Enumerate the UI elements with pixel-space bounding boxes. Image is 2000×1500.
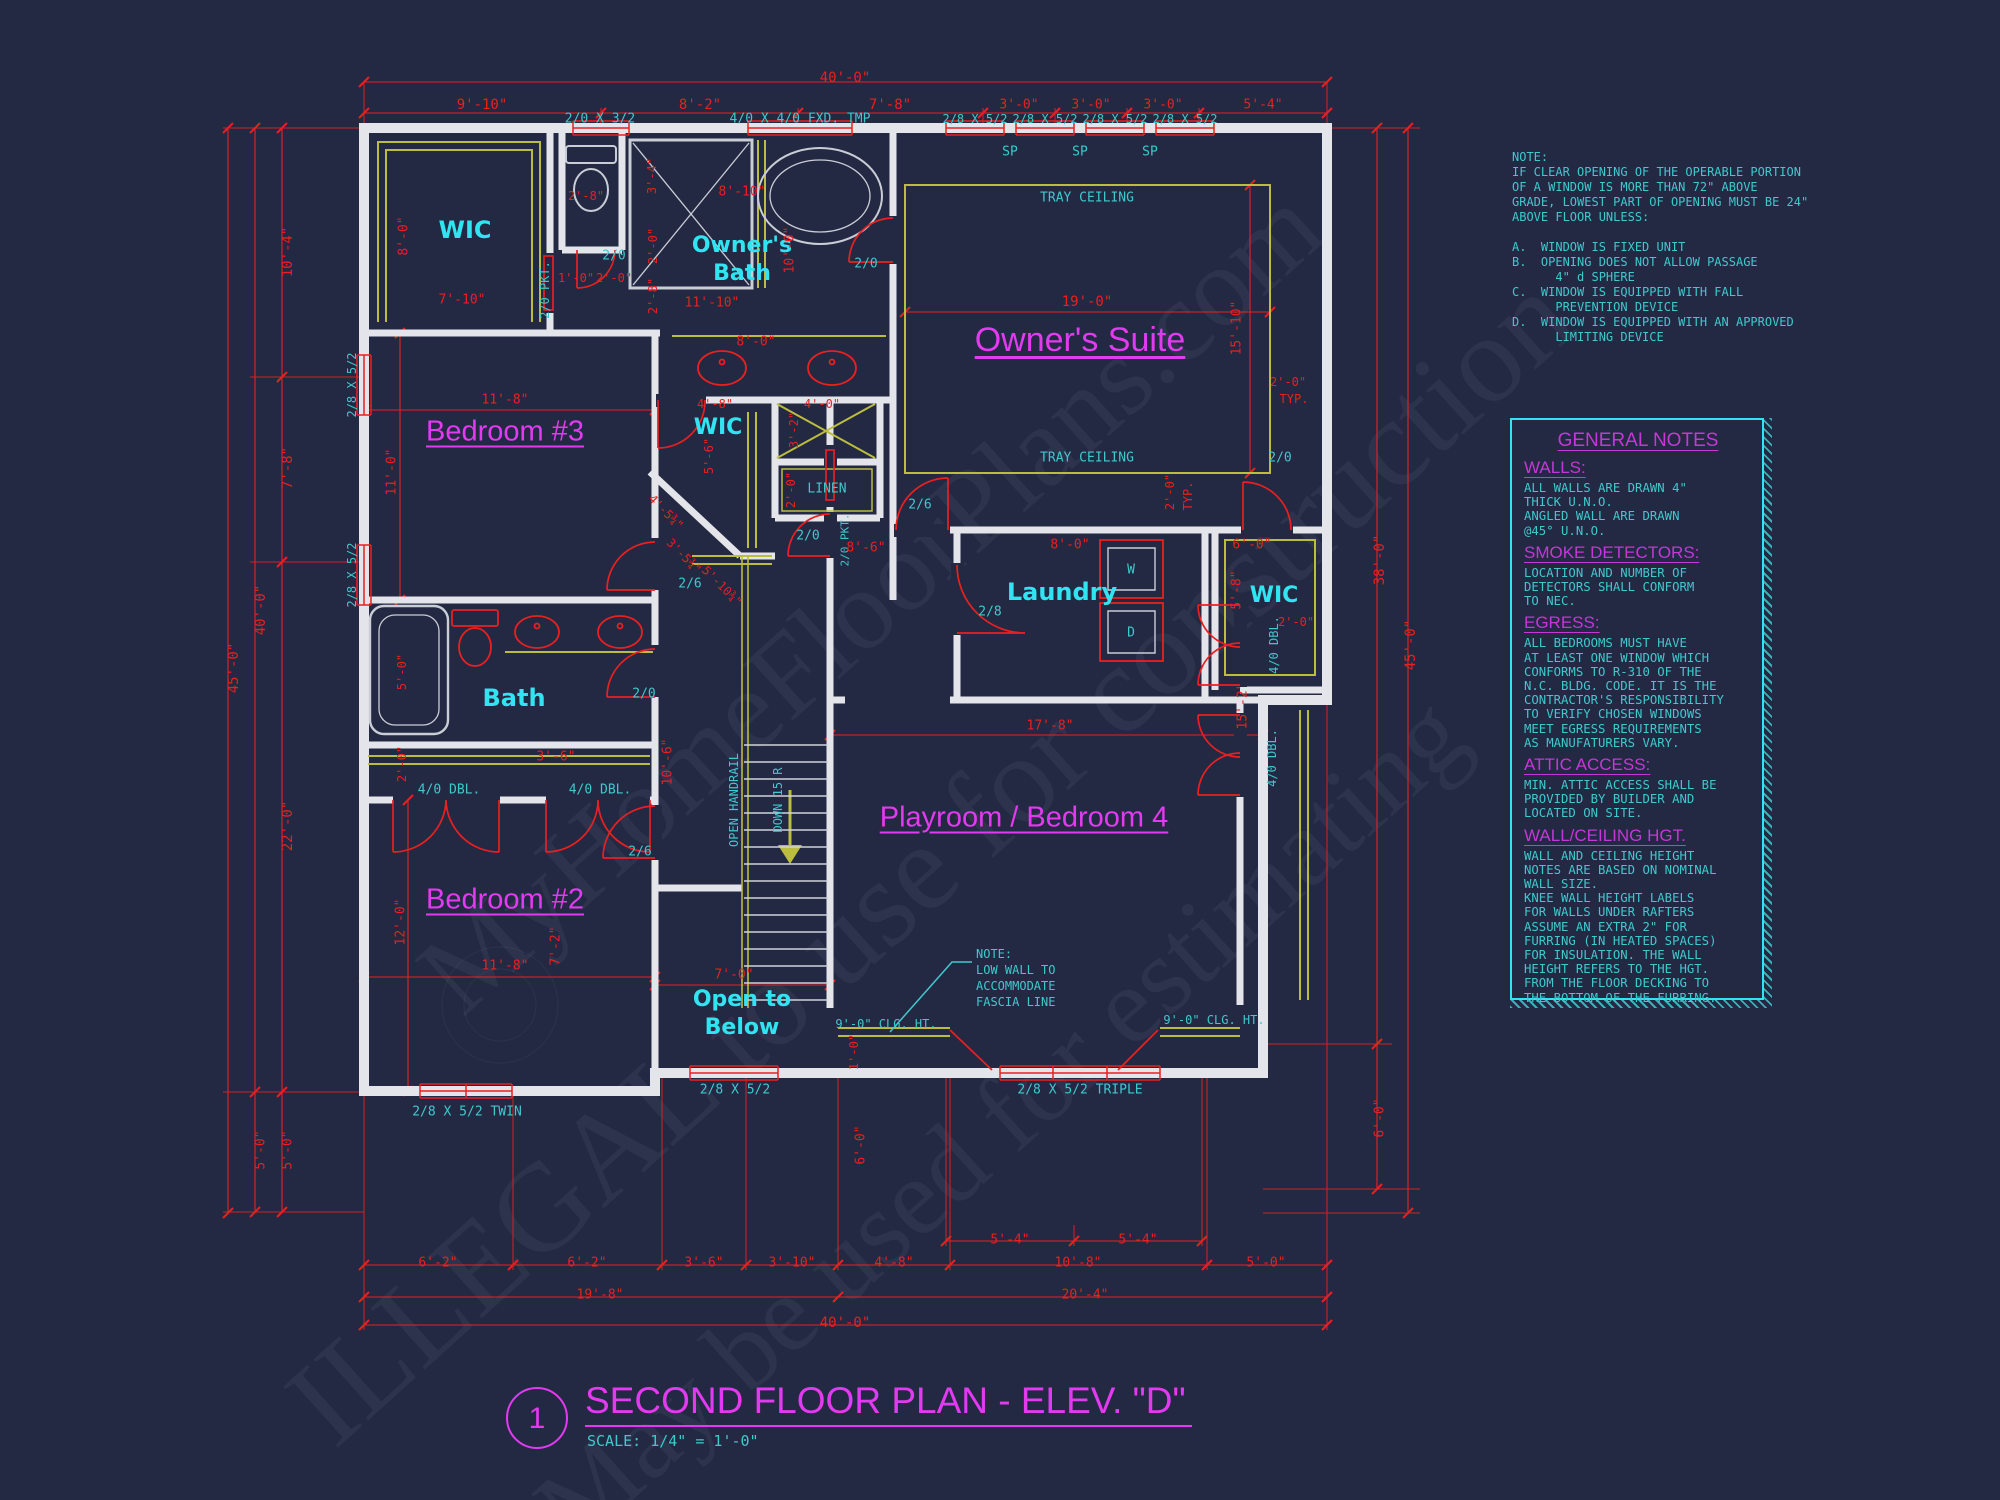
annotation-label: LOW WALL TO (976, 964, 1055, 976)
dimension-label: 2'-0" (1270, 376, 1306, 388)
door-label: 2/0 (854, 258, 877, 271)
annotation-label: SP (1142, 146, 1158, 159)
dimension-label: 5'-0" (1246, 1257, 1285, 1270)
dimension-label: 11'-0" (386, 449, 399, 496)
general-notes-line: ALL WALLS ARE DRAWN 4" (1524, 481, 1762, 495)
window-note-line: PREVENTION DEVICE (1512, 300, 1812, 315)
door-label: 2/6 (628, 846, 651, 859)
annotation-label: NOTE: (976, 948, 1012, 960)
general-notes-heading: EGRESS: (1524, 613, 1762, 633)
general-notes-line: TO VERIFY CHOSEN WINDOWS (1524, 707, 1762, 721)
dimension-label: 6'-2" (418, 1257, 457, 1270)
general-notes-line: AS MANUFATURERS VARY. (1524, 736, 1762, 750)
room-label-bedroom-2: Bedroom #2 (426, 886, 584, 915)
dimension-label: 5'-6" (703, 438, 715, 474)
dimension-label: 22'-0" (281, 801, 295, 852)
dimension-label: 2'-8" (568, 190, 604, 202)
window-label: 4/0 X 4/0 FXD. TMP (730, 113, 871, 126)
general-notes-line: WALL SIZE. (1524, 877, 1762, 891)
general-notes-heading: WALL/CEILING HGT. (1524, 826, 1762, 846)
room-label-linen: LINEN (807, 483, 846, 496)
dimension-label: 5'-4" (1243, 99, 1282, 112)
window-code-note: NOTE:IF CLEAR OPENING OF THE OPERABLE PO… (1512, 150, 1812, 345)
dimension-label: 5'-0" (282, 1130, 295, 1169)
door-label: 2/6 (908, 499, 931, 512)
dimension-label: 4'-8" (874, 1257, 913, 1270)
sink (808, 351, 856, 385)
dimension-label: 3'-2" (788, 412, 800, 448)
toilet-bowl (459, 628, 491, 666)
dimension-label: 6'-0" (855, 1125, 868, 1164)
dimension-label: 10'-6" (662, 739, 675, 786)
dimension-label: 7'-0" (714, 969, 753, 982)
general-notes-line: HEIGHT REFERS TO THE HGT. (1524, 962, 1762, 976)
window-label: 2/8 X 5/2 (1012, 113, 1077, 125)
dimension-label: 10'-4" (281, 227, 295, 278)
floor-plan-sheet: MyHomeFloorPlans.com ILLEGAL to use for … (0, 0, 2000, 1500)
general-notes-line: FOR INSULATION. THE WALL (1524, 948, 1762, 962)
general-notes-line: FURRING (IN HEATED SPACES) (1524, 934, 1762, 948)
dimension-label: 6'-0" (1232, 539, 1271, 552)
general-notes-line: CONFORMS TO R-310 OF THE (1524, 665, 1762, 679)
general-notes-line: ASSUME AN EXTRA 2" FOR (1524, 920, 1762, 934)
dimension-label: 7'-8" (869, 98, 911, 112)
general-notes-body: WALLS:ALL WALLS ARE DRAWN 4"THICK U.N.O.… (1524, 458, 1762, 1005)
room-label-bedroom-3: Bedroom #3 (426, 418, 584, 447)
dimension-label: 8'-6" (846, 542, 885, 555)
washer-label: W (1127, 564, 1135, 577)
annotation-label: Bath (713, 263, 771, 285)
dimension-label: 8'-0" (736, 336, 775, 349)
dimension-label: 11'-8" (482, 960, 529, 973)
dimension-label: 8'-2" (679, 98, 721, 112)
room-label-laundry: Laundry (1007, 580, 1117, 604)
room-label-playroom: Playroom / Bedroom 4 (880, 804, 1169, 833)
door-label: 2/0 (602, 250, 625, 263)
dimension-label: 7'-8" (281, 447, 295, 489)
dimension-label: 6'-0" (1374, 1098, 1387, 1137)
general-notes-line: THE BOTTOM OF THE FURRING. (1524, 991, 1762, 1005)
annotation-label: ACCOMMODATE (976, 980, 1055, 992)
window-note-line: NOTE: (1512, 150, 1812, 165)
plan-title: SECOND FLOOR PLAN - ELEV. "D" (585, 1380, 1186, 1422)
dimension-label: 3'-0" (999, 99, 1038, 112)
dimension-label: 5'-0" (396, 654, 408, 690)
window-label: 2/8 X 5/2 (1082, 113, 1147, 125)
dimension-label: 4'-0" (804, 398, 840, 410)
dimension-label: 2'-8" (647, 278, 659, 314)
dimension-label: 2'-0" (1164, 474, 1176, 510)
general-notes-line: PROVIDED BY BUILDER AND (1524, 792, 1762, 806)
general-notes-line: CONTRACTOR'S RESPONSIBILITY (1524, 693, 1762, 707)
door-label: 4/0 DBL. (1266, 729, 1278, 787)
dimension-label: 4'-8" (697, 398, 733, 410)
sink (598, 616, 642, 648)
dimension-label: 12'-0" (395, 899, 408, 946)
general-notes-line: FROM THE FLOOR DECKING TO (1524, 976, 1762, 990)
dimension-label: TYP. (1182, 482, 1194, 511)
dimension-label: 15'-10" (1231, 301, 1244, 356)
door-label: 2/0 (796, 530, 819, 543)
general-notes-line: MEET EGRESS REQUIREMENTS (1524, 722, 1762, 736)
window-label: 2/8 X 5/2 TWIN (412, 1106, 522, 1119)
room-label-wic-1: WIC (438, 218, 491, 242)
window-label: 2/0 X 3/2 (565, 113, 635, 126)
dryer-label: D (1127, 627, 1135, 640)
dimension-label: 40'-0" (254, 585, 268, 636)
general-notes-line: N.C. BLDG. CODE. IT IS THE (1524, 679, 1762, 693)
general-notes-heading: ATTIC ACCESS: (1524, 755, 1762, 775)
general-notes-line: AT LEAST ONE WINDOW WHICH (1524, 651, 1762, 665)
window-note-line: ABOVE FLOOR UNLESS: (1512, 210, 1812, 225)
dimension-label: 1'-0" (558, 272, 594, 284)
dimension-label: 17'-8" (1027, 720, 1074, 733)
door-label: 2/0 (632, 688, 655, 701)
dimension-label: 2'-0" (596, 272, 632, 284)
general-notes-line: KNEE WALL HEIGHT LABELS (1524, 891, 1762, 905)
dimension-label: 15'-2" (1237, 683, 1250, 730)
window-label: 2/8 X 5/2 TRIPLE (1017, 1084, 1142, 1097)
dimension-label: 5'-4" (1118, 1234, 1157, 1247)
room-label-wic-3: WIC (1250, 585, 1299, 607)
bathtub (370, 606, 448, 734)
window-note-line: IF CLEAR OPENING OF THE OPERABLE PORTION (1512, 165, 1812, 180)
annotation-label: TRAY CEILING (1040, 452, 1134, 465)
window-note-line: A. WINDOW IS FIXED UNIT (1512, 240, 1812, 255)
general-notes-box: GENERAL NOTES WALLS:ALL WALLS ARE DRAWN … (1510, 418, 1772, 1008)
window-note-line: GRADE, LOWEST PART OF OPENING MUST BE 24… (1512, 195, 1812, 210)
general-notes-heading: WALLS: (1524, 458, 1762, 478)
stairs-down-arrow (778, 845, 802, 864)
dimension-label: 5'-0" (255, 1130, 268, 1169)
plan-scale: SCALE: 1/4" = 1'-0" (587, 1432, 759, 1450)
door-label: 2/6 (678, 578, 701, 591)
dimension-label: 2'-0" (396, 746, 408, 782)
dimension-label: 11'-8" (482, 394, 529, 407)
room-label-owners-bath: Owner's (692, 235, 792, 257)
dimension-label: 10'-8" (1055, 1257, 1102, 1270)
door-label: 4/0 DBL. (418, 784, 481, 797)
annotation-label: SP (1072, 146, 1088, 159)
dimension-label: 8'-0" (398, 216, 411, 255)
dimension-label: 2'-0" (1278, 616, 1314, 628)
stairs (744, 745, 828, 1000)
general-notes-line: LOCATED ON SITE. (1524, 806, 1762, 820)
window-note-line: LIMITING DEVICE (1512, 330, 1812, 345)
dimension-label: 40'-0" (820, 1316, 871, 1330)
room-label-owners-suite: Owner's Suite (975, 323, 1186, 357)
dimension-label: 3'-10" (769, 1257, 816, 1270)
toilet-tank (566, 146, 616, 163)
door-label: 4/0 DBL. (569, 784, 632, 797)
dimension-label: 38'-0" (1373, 535, 1387, 586)
dimension-label: 9'-10" (457, 98, 508, 112)
room-label-bath: Bath (482, 686, 545, 710)
window-label: 2/8 X 5/2 (346, 352, 358, 417)
window-label: 2/8 X 5/2 (942, 113, 1007, 125)
annotation-label: TRAY CEILING (1040, 192, 1134, 205)
dimension-label: 3'-0" (1071, 99, 1110, 112)
dimension-label: 3'-6" (684, 1257, 723, 1270)
dimension-label: 5'-8" (1231, 570, 1244, 609)
dimension-label: 20'-4" (1062, 1289, 1109, 1302)
door-label: 4/0 DBL. (1268, 616, 1280, 674)
low-wall-diagonals (950, 1030, 1158, 1070)
sink (515, 616, 559, 648)
window-note-line: B. OPENING DOES NOT ALLOW PASSAGE (1512, 255, 1812, 270)
window-label: 2/8 X 5/2 (700, 1084, 770, 1097)
window-note-line: OF A WINDOW IS MORE THAN 72" ABOVE (1512, 180, 1812, 195)
dimension-label: 7'-2" (550, 926, 563, 965)
annotation-label: 9'-0" CLG. HT. (1163, 1014, 1264, 1026)
sink (698, 351, 746, 385)
dimension-label: 3'-4" (646, 158, 658, 194)
annotation-label: Below (705, 1017, 780, 1039)
general-notes-line: THICK U.N.O. (1524, 495, 1762, 509)
window-note-line: C. WINDOW IS EQUIPPED WITH FALL (1512, 285, 1812, 300)
dimension-label: 3'-6" (536, 751, 575, 764)
annotation-label: FASCIA LINE (976, 996, 1055, 1008)
annotation-label: OPEN HANDRAIL (728, 753, 740, 847)
general-notes-line: @45° U.N.O. (1524, 524, 1762, 538)
general-notes-line: ALL BEDROOMS MUST HAVE (1524, 636, 1762, 650)
dimension-label: 10'-0" (784, 227, 797, 274)
dimension-label: 45'-0" (1404, 620, 1418, 671)
general-notes-heading: SMOKE DETECTORS: (1524, 543, 1762, 563)
general-notes-line: LOCATION AND NUMBER OF (1524, 566, 1762, 580)
dimension-label: 8'-10" (719, 186, 766, 199)
general-notes-line: TO NEC. (1524, 594, 1762, 608)
general-notes-title: GENERAL NOTES (1524, 430, 1752, 452)
general-notes-line: FOR WALLS UNDER RAFTERS (1524, 905, 1762, 919)
dimension-label: 1'-0" (848, 1034, 860, 1070)
dimension-label: 19'-0" (1062, 295, 1113, 309)
dimension-label: 5'-4" (990, 1234, 1029, 1247)
dimension-label: 19'-8" (577, 1289, 624, 1302)
general-notes-line: MIN. ATTIC ACCESS SHALL BE (1524, 778, 1762, 792)
dimension-label: 8'-0" (1050, 539, 1089, 552)
dimension-label: 6'-2" (567, 1257, 606, 1270)
sheet-number: 1 (529, 1402, 546, 1436)
general-notes-line: ANGLED WALL ARE DRAWN (1524, 509, 1762, 523)
dimension-label: 40'-0" (820, 71, 871, 85)
dimension-label: 2'-0" (647, 228, 659, 264)
dimension-label: 2'-0" (785, 472, 797, 508)
room-label-wic-2: WIC (694, 417, 743, 439)
door-label: 2/0 PKT. (539, 261, 551, 319)
toilet-tank (452, 610, 498, 626)
window-label: 2/8 X 5/2 (1152, 113, 1217, 125)
door-label: 2/0 (1268, 452, 1291, 465)
dimension-label: 3'-0" (1143, 99, 1182, 112)
window-note-line: D. WINDOW IS EQUIPPED WITH AN APPROVED (1512, 315, 1812, 330)
window-note-line: 4" d SPHERE (1512, 270, 1812, 285)
dimension-label: 45'-0" (227, 643, 241, 694)
annotation-label: DOWN 15 R (772, 767, 784, 832)
window-label: 2/8 X 5/2 (346, 542, 358, 607)
room-label-open-to-below: Open to (693, 989, 791, 1011)
dimension-label: 7'-10" (439, 294, 486, 307)
general-notes-line: NOTES ARE BASED ON NOMINAL (1524, 863, 1762, 877)
annotation-label: 9'-0" CLG. HT. (835, 1018, 936, 1030)
door-label: 2/8 (978, 606, 1001, 619)
dimension-label: 11'-10" (685, 297, 740, 310)
walls (364, 128, 1327, 1091)
general-notes-line: WALL AND CEILING HEIGHT (1524, 849, 1762, 863)
dimension-label: TYP. (1280, 393, 1309, 405)
window-note-line (1512, 225, 1812, 240)
annotation-label: SP (1002, 146, 1018, 159)
general-notes-line: DETECTORS SHALL CONFORM (1524, 580, 1762, 594)
